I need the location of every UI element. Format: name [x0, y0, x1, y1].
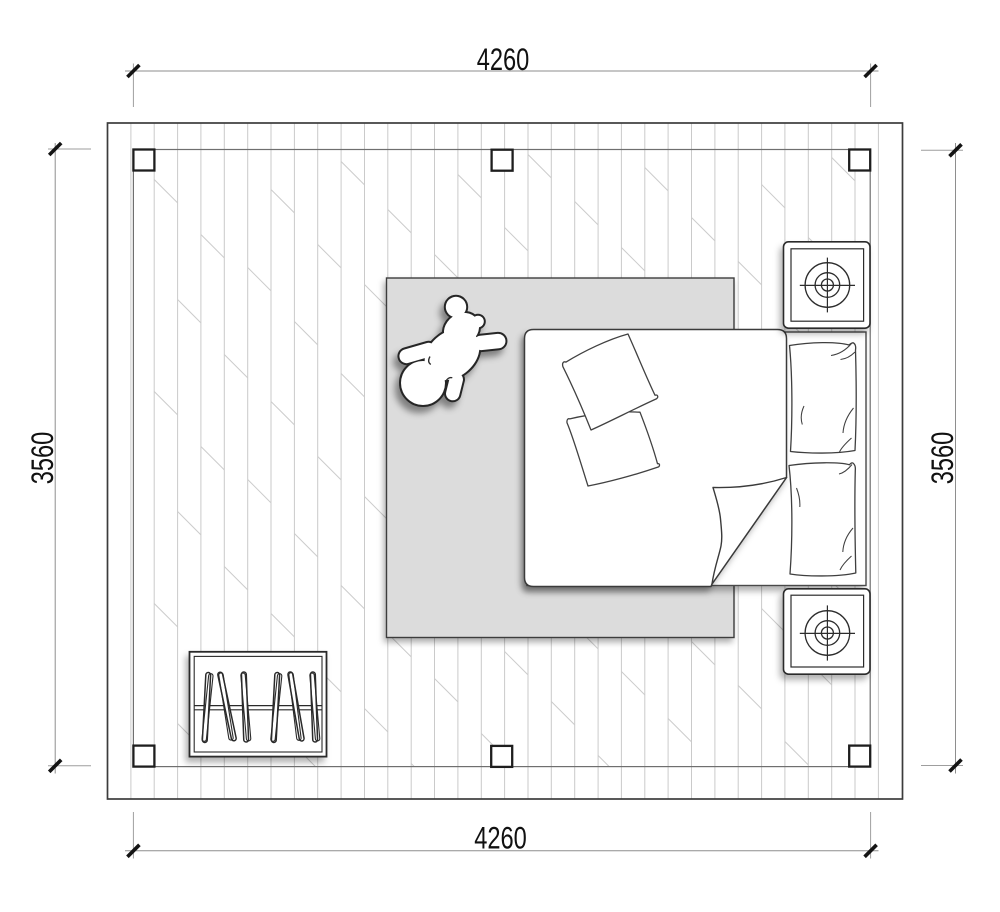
- svg-text:4260: 4260: [474, 820, 527, 855]
- svg-text:4260: 4260: [477, 42, 530, 77]
- svg-text:3560: 3560: [25, 432, 60, 485]
- svg-text:3560: 3560: [925, 432, 960, 485]
